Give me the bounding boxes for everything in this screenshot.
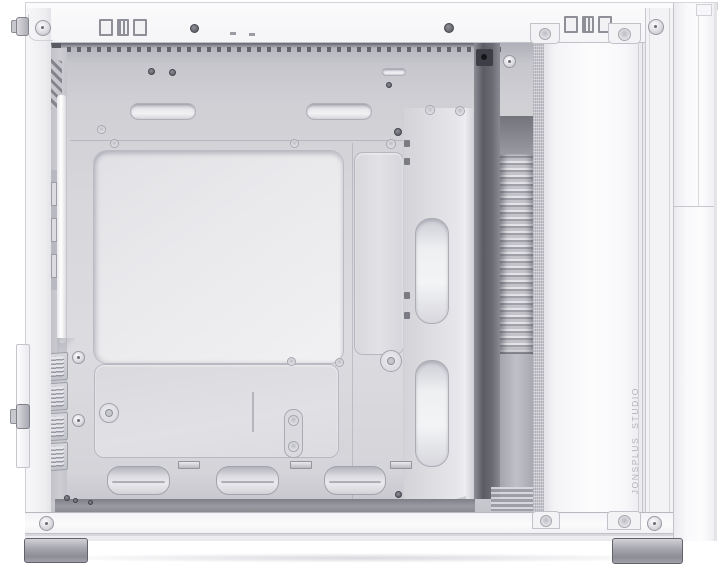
case-floor-edge: [55, 499, 475, 512]
band-line: [649, 8, 650, 512]
screw: [190, 24, 199, 33]
bracket-hole: [288, 415, 299, 426]
side-cable-cutout-lower: [415, 360, 449, 467]
front-shadow-gap: [474, 42, 500, 499]
slotted-bracket: [284, 409, 303, 458]
bottom-frame-groove: [25, 533, 690, 536]
tab-hole: [540, 515, 552, 527]
small-slot-pair: [382, 68, 406, 76]
latch-mark: [178, 461, 200, 469]
mounting-tab: [607, 511, 641, 530]
bottom-cable-cutout: [107, 466, 170, 495]
front-panel-outer: [673, 2, 717, 541]
pc-case-product-photo: JONSPLUS STUDIO: [0, 0, 720, 568]
mounting-tab: [530, 23, 560, 44]
band-line: [669, 8, 670, 512]
tab-hole: [539, 28, 551, 40]
tab-hole: [618, 515, 631, 528]
screw: [169, 69, 176, 76]
screw: [647, 516, 662, 531]
latch-mark: [290, 461, 312, 469]
top-mounting-clips-right: [564, 16, 612, 33]
bracket-hole: [288, 441, 299, 452]
frame-dash-mark: [230, 32, 236, 35]
thumbscrew-hole: [648, 19, 664, 35]
front-panel-top-tab: [696, 4, 712, 16]
top-mounting-clips-left: [99, 19, 147, 36]
standoff-post: [72, 414, 85, 427]
standoff-hole: [455, 106, 465, 116]
fan-bracket-lower: [500, 354, 533, 487]
screw: [394, 128, 402, 136]
standoff-hole: [110, 139, 119, 148]
bottom-frame: [25, 512, 690, 541]
case-foot-left: [24, 538, 88, 563]
mounting-tab: [532, 511, 560, 529]
corner-bracket: [476, 49, 493, 66]
frame-corner-notch: [28, 14, 53, 41]
screw: [395, 491, 402, 498]
brand-text-vertical: JONSPLUS STUDIO: [626, 387, 643, 495]
screw-hole: [287, 357, 296, 366]
tray-fold-line-horizontal: [70, 140, 403, 141]
cable-cover-panel: [354, 152, 404, 355]
standoff-post: [72, 351, 85, 364]
hinge-mark: [404, 312, 410, 319]
cable-grommet: [99, 403, 119, 423]
clip-mark: [117, 19, 129, 36]
standoff-hole: [290, 139, 299, 148]
clip-mark: [564, 16, 578, 33]
dust-filter-strip: [533, 42, 544, 512]
fan-bracket-louvers: [500, 154, 533, 354]
top-cable-slot-left: [130, 103, 196, 120]
cpu-cutout: [93, 150, 344, 364]
clip-mark: [133, 19, 147, 36]
case-foot-right: [612, 538, 683, 564]
screw: [503, 55, 516, 68]
cable-grommet: [380, 350, 402, 372]
brand-text: JONSPLUS STUDIO: [630, 387, 640, 494]
standoff-hole: [425, 105, 435, 115]
rear-rail-end-shadow: [57, 338, 75, 353]
debris-speck: [88, 500, 93, 505]
hinge-mark: [404, 158, 410, 165]
front-panel-line: [698, 15, 699, 206]
hinge-mark: [404, 140, 410, 147]
tray-fold-line-vertical: [352, 143, 353, 499]
frame-dash-mark: [249, 33, 255, 36]
latch-mark: [390, 461, 412, 469]
front-bar-edge-highlight: [466, 108, 474, 499]
bottom-cable-cutout: [324, 466, 386, 495]
bottom-intake-grille: [491, 487, 533, 511]
thin-slot: [252, 392, 254, 432]
bracket-screw: [481, 54, 487, 60]
top-cable-slot-right: [306, 103, 372, 120]
screw: [148, 68, 155, 75]
front-panel-right-edge: [714, 3, 717, 541]
clip-mark: [99, 19, 113, 36]
screw-hole: [335, 358, 344, 367]
screw: [386, 82, 392, 88]
tab-hole: [618, 28, 631, 41]
screw: [39, 516, 54, 531]
ground-shadow: [34, 553, 684, 563]
standoff-hole: [97, 125, 106, 134]
screw: [444, 23, 454, 33]
debris-speck: [64, 495, 70, 501]
thumbscrew-head: [16, 17, 29, 36]
side-cable-cutout-upper: [415, 218, 449, 324]
top-vent-dash-row: [57, 47, 507, 52]
fan-bracket-cap: [500, 116, 533, 154]
right-frame-band: [645, 8, 674, 512]
hinge-mark: [404, 292, 410, 299]
bottom-cable-cutout: [216, 466, 279, 495]
thumbscrew-head: [16, 404, 30, 429]
rear-bright-rail: [57, 95, 66, 343]
thumbscrew-rear-mid: [10, 404, 29, 428]
standoff-hole: [386, 139, 396, 149]
debris-speck: [73, 498, 78, 503]
front-radiator-panel: JONSPLUS STUDIO: [544, 42, 645, 513]
mounting-tab: [608, 23, 641, 44]
thumbscrew-rear-top: [11, 17, 29, 35]
clip-mark: [582, 16, 594, 33]
front-panel-seam: [674, 206, 717, 207]
